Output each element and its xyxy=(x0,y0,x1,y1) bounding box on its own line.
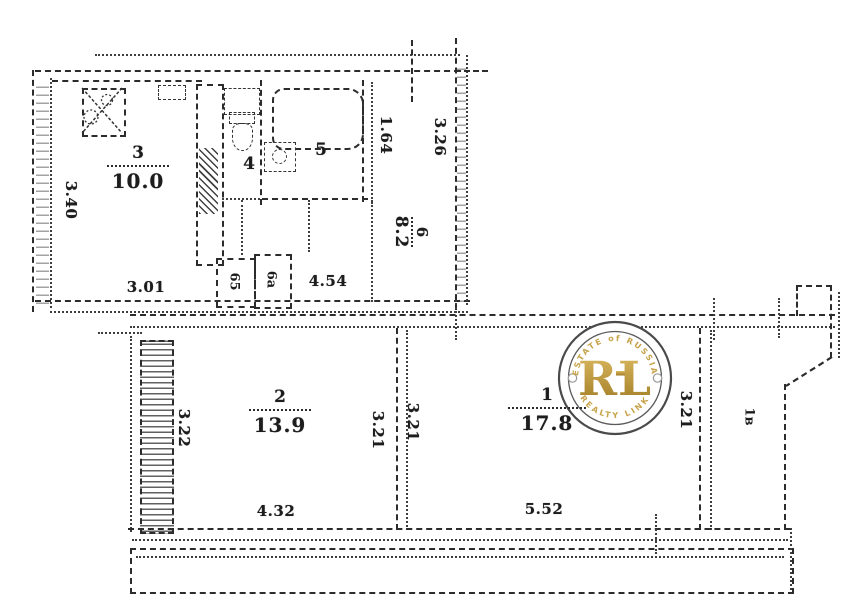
floor-plan: ESTATE of RUSSIA REALTY LINK RL 3 10.0 4… xyxy=(0,0,850,600)
dim-kitchen-left: 3.40 xyxy=(62,168,80,232)
kitchen-area-value: 10.0 xyxy=(100,170,176,193)
kitchen-label-divider xyxy=(107,165,169,167)
bedroom-label-divider xyxy=(249,409,311,411)
bedroom-room-number: 2 xyxy=(238,388,322,407)
closet-left-label: 65 xyxy=(227,262,242,302)
living-room-number: 1 xyxy=(503,386,591,405)
bedroom-label: 2 13.9 xyxy=(238,388,322,437)
dim-right-wall: 3.26 xyxy=(431,110,449,164)
toilet-room-number: 4 xyxy=(238,155,260,174)
plan-overlay xyxy=(0,0,850,600)
bath-room-number: 5 xyxy=(310,141,332,160)
balcony-label: 1в xyxy=(742,399,757,435)
hall-room-number: 6 xyxy=(414,204,430,260)
hall-area-value: 8.2 xyxy=(391,204,410,260)
dim-living-right: 3.21 xyxy=(677,382,695,438)
dim-bedroom-right: 3.21 xyxy=(369,402,387,458)
dim-bedroom-left: 3.22 xyxy=(175,400,193,456)
living-area-value: 17.8 xyxy=(503,412,591,435)
dim-hall-top: 1.64 xyxy=(377,108,395,162)
bedroom-area-value: 13.9 xyxy=(238,414,322,437)
dim-bedroom-bottom: 4.32 xyxy=(246,502,306,520)
dim-kitchen-bottom: 3.01 xyxy=(116,278,176,296)
kitchen-label: 3 10.0 xyxy=(100,144,176,193)
dim-living-left: 3.21 xyxy=(404,394,422,450)
living-label-divider xyxy=(508,407,586,409)
closet-right-label: 6а xyxy=(264,260,279,300)
kitchen-room-number: 3 xyxy=(100,144,176,163)
dim-living-bottom: 5.52 xyxy=(514,500,574,518)
dim-hall-bottom: 4.54 xyxy=(298,272,358,290)
hall-label: 6 8.2 xyxy=(386,204,430,260)
monogram-crossbar-icon xyxy=(616,371,625,376)
living-label: 1 17.8 xyxy=(503,386,591,435)
balcony-corner-diagonal xyxy=(786,357,832,386)
